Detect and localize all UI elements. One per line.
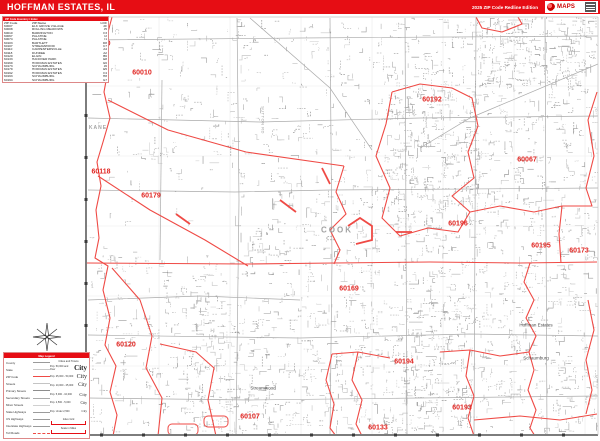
legend-pop-label: Pop. 25,000 - 50,000 bbox=[50, 375, 73, 378]
legend-line-swatch bbox=[33, 383, 50, 384]
legend-pop-label: Pop. 10,000 - 25,000 bbox=[50, 384, 73, 387]
legend-line-swatch bbox=[33, 376, 50, 377]
zip-area-label: 60120 bbox=[116, 342, 135, 349]
zip-area-label: 60196 bbox=[448, 221, 467, 228]
compass-rose-icon bbox=[28, 322, 66, 352]
zip-area-label: 60107 bbox=[240, 414, 259, 421]
legend-item-state: State bbox=[6, 366, 50, 373]
zip-area-label: 60173 bbox=[569, 248, 588, 255]
legend-item-label: State bbox=[6, 368, 13, 372]
zip-code-cell: 60194 bbox=[3, 79, 31, 82]
legend-item-toll: Toll Roads bbox=[6, 430, 50, 437]
zip-area-label: 60133 bbox=[368, 425, 387, 432]
map-page: HOFFMAN ESTATES, IL 2025 ZIP Code Redlin… bbox=[0, 0, 600, 441]
legend-item-label: Streets bbox=[6, 382, 15, 386]
legend-line-swatch bbox=[33, 412, 50, 413]
legend-pop-label: Pop. 2,500 - 5,000 bbox=[50, 401, 71, 404]
legend-line-swatch bbox=[33, 390, 50, 391]
legend-city-size: Pop. 5,000 - 10,000City bbox=[50, 390, 87, 399]
county-label: KANE bbox=[89, 125, 107, 131]
legend-item-county: County bbox=[6, 359, 50, 366]
map-legend: Map Legend CountyStateZIP CodeStreetsPri… bbox=[3, 352, 90, 439]
legend-item-label: Minor Streets bbox=[6, 403, 23, 407]
scale-bar-rule bbox=[51, 421, 86, 425]
zip-table-row: 60194SCHAUMBURGG7 bbox=[3, 79, 108, 82]
zip-area-label: 60194 bbox=[394, 359, 413, 366]
legend-pop-label: Pop. 50,000 and Over bbox=[50, 365, 74, 371]
legend-line-samples: CountyStateZIP CodeStreetsPrimary Street… bbox=[6, 359, 50, 437]
legend-city-samples: Cities and Towns Pop. 50,000 and OverCit… bbox=[50, 359, 87, 437]
legend-item-street: Streets bbox=[6, 380, 50, 387]
zip-code-index: ZIP Code Inventory / Index ZIP CodeZIP N… bbox=[2, 16, 109, 83]
legend-city-sample: City bbox=[78, 382, 87, 388]
legend-city-sample: City bbox=[74, 364, 87, 372]
place-label: Streamwood bbox=[250, 386, 275, 391]
legend-line-swatch bbox=[33, 433, 50, 434]
legend-line-swatch bbox=[33, 419, 50, 420]
legend-line-swatch bbox=[33, 398, 50, 399]
legend-item-secondary: Secondary Streets bbox=[6, 394, 50, 401]
legend-city-sample: City bbox=[79, 392, 87, 397]
legend-item-zip: ZIP Code bbox=[6, 373, 50, 380]
zip-area-label: 60179 bbox=[141, 193, 160, 200]
legend-item-label: County bbox=[6, 361, 15, 365]
zip-area-label: 60169 bbox=[339, 286, 358, 293]
legend-item-label: Interstate Highways bbox=[6, 424, 31, 428]
publisher-logo: MAPS bbox=[545, 1, 598, 13]
zip-area-label: 60195 bbox=[531, 243, 550, 250]
legend-item-primary: Primary Streets bbox=[6, 387, 50, 394]
legend-scale-bar: Index Grid bbox=[50, 418, 87, 425]
legend-item-minor: Minor Streets bbox=[6, 402, 50, 409]
zip-name-cell: SCHAUMBURG bbox=[31, 79, 92, 82]
legend-pop-label: Pop. 5,000 - 10,000 bbox=[50, 393, 72, 396]
logo-text: MAPS bbox=[557, 4, 585, 10]
legend-city-size: Pop. 2,500 - 5,000City bbox=[50, 398, 87, 407]
legend-line-swatch bbox=[33, 369, 50, 370]
edition-label: 2025 ZIP Code Redline Edition bbox=[472, 5, 538, 10]
legend-line-swatch bbox=[33, 362, 50, 363]
legend-item-label: Secondary Streets bbox=[6, 396, 30, 400]
legend-item-label: ZIP Code bbox=[6, 375, 18, 379]
legend-city-size: Pop. Under 2,500City bbox=[50, 407, 87, 416]
legend-item-label: Toll Roads bbox=[6, 431, 20, 435]
legend-line-swatch bbox=[33, 405, 50, 406]
logo-block-icon bbox=[585, 2, 596, 12]
legend-item-statehwy: State Highways bbox=[6, 409, 50, 416]
legend-item-label: US Highways bbox=[6, 417, 23, 421]
legend-city-header: Cities and Towns bbox=[50, 360, 87, 363]
legend-city-size: Pop. 25,000 - 50,000City bbox=[50, 373, 87, 382]
zip-area-label: 60118 bbox=[91, 169, 110, 176]
zip-loc-cell: G7 bbox=[92, 79, 108, 82]
legend-city-sample: City bbox=[77, 374, 87, 380]
legend-item-label: Primary Streets bbox=[6, 389, 26, 393]
legend-item-interstate: Interstate Highways bbox=[6, 423, 50, 430]
legend-city-size: Pop. 50,000 and OverCity bbox=[50, 364, 87, 373]
legend-item-label: State Highways bbox=[6, 410, 26, 414]
legend-line-swatch bbox=[33, 426, 50, 427]
place-label: Hoffman Estates bbox=[519, 323, 552, 328]
legend-city-sample: City bbox=[82, 409, 88, 413]
zip-index-table: ZIP CodeZIP NameLOC 60007ELK GROVE VILLA… bbox=[3, 21, 108, 82]
logo-globe-icon bbox=[547, 3, 555, 11]
zip-area-label: 60010 bbox=[132, 70, 151, 77]
legend-city-size: Pop. 10,000 - 25,000City bbox=[50, 381, 87, 390]
scale-bar-rule bbox=[51, 430, 86, 434]
legend-city-sample: City bbox=[80, 401, 87, 405]
page-title: HOFFMAN ESTATES, IL bbox=[7, 2, 115, 12]
legend-pop-label: Pop. Under 2,500 bbox=[50, 410, 70, 413]
header-bar: HOFFMAN ESTATES, IL 2025 ZIP Code Redlin… bbox=[0, 0, 600, 14]
road-label: SUTTON RD bbox=[261, 106, 266, 134]
zip-area-label: 60067 bbox=[517, 157, 536, 164]
place-label: Schaumburg bbox=[523, 356, 549, 361]
legend-item-ushwy: US Highways bbox=[6, 416, 50, 423]
county-label: COOK bbox=[321, 226, 353, 235]
legend-scale-bar: Scale in Miles bbox=[50, 427, 87, 434]
zip-area-label: 60193 bbox=[452, 405, 471, 412]
zip-area-label: 60192 bbox=[422, 97, 441, 104]
